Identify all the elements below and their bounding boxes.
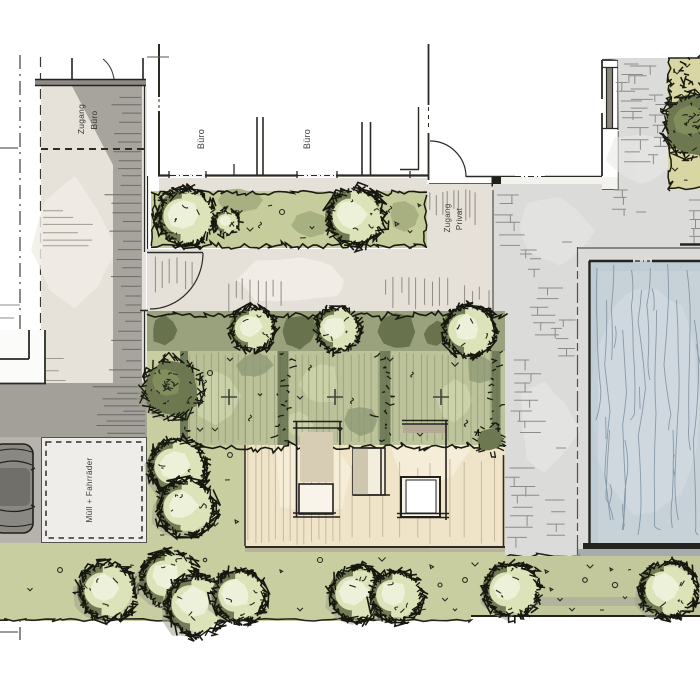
svg-text:Privat: Privat xyxy=(455,207,464,230)
svg-text:Zugang: Zugang xyxy=(443,204,452,233)
svg-text:Büro: Büro xyxy=(196,129,206,149)
svg-text:Büro: Büro xyxy=(302,129,312,149)
svg-text:Müll + Fahrräder: Müll + Fahrräder xyxy=(85,457,94,522)
svg-text:Büro: Büro xyxy=(89,111,99,130)
svg-text:Zugang: Zugang xyxy=(76,104,86,134)
